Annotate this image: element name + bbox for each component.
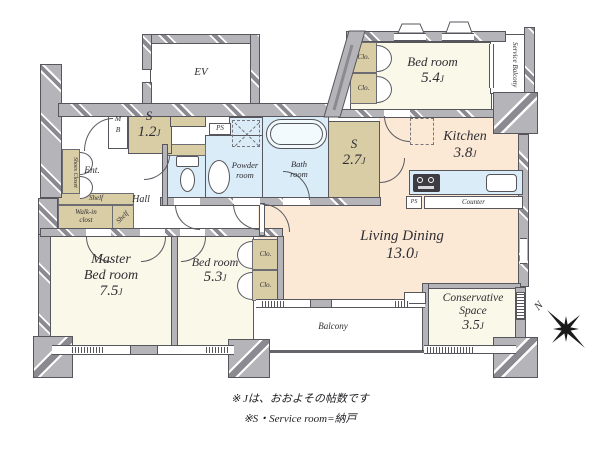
s27-label: S 2.7J: [330, 137, 378, 168]
bedroom54-window-b: [442, 33, 474, 41]
conservative-name-1: Conservative: [430, 292, 516, 305]
toilet-shelf: [167, 144, 206, 156]
conservative-name-2: Space: [430, 305, 516, 318]
wic-line-2: clost: [58, 217, 114, 225]
wall-north-band: [58, 103, 332, 117]
gap-master-wic: [86, 229, 111, 236]
master-name-1: Master: [52, 252, 170, 268]
ps-kitchen-label: PS: [406, 199, 422, 206]
bath-label: Bath room: [276, 160, 322, 179]
kitchen-sink: [486, 174, 517, 192]
master-name-2: Bed room: [52, 268, 170, 284]
master-size: 7.5J: [52, 283, 170, 300]
living-dining-label: Living Dining 13.0J: [322, 228, 482, 263]
note-line-2: ※S・Service room=納戸: [150, 410, 450, 426]
bedroom53-size: 5.3J: [178, 269, 252, 286]
bedroom53-name: Bed room: [178, 256, 252, 269]
gap-bedroom53-door: [180, 229, 205, 236]
conservative-wall-top: [422, 283, 521, 289]
bedroom54-label: Bed room 5.4J: [375, 55, 490, 86]
master-bedroom-label: Master Bed room 7.5J: [52, 252, 170, 300]
bathtub: [266, 119, 327, 149]
washer-x-icon: [233, 121, 261, 148]
conservative-window-stripe: [427, 347, 475, 353]
window-stripe-a: [72, 347, 104, 353]
ev-wall-top: [142, 34, 260, 44]
counter-label: Counter: [424, 199, 523, 207]
ev-label: EV: [150, 66, 252, 78]
shelf-label: Shelf: [58, 195, 134, 203]
entrance-label: Ent.: [75, 166, 109, 177]
living-dining-size: 13.0J: [322, 245, 482, 263]
s27-name: S: [330, 137, 378, 152]
wall-between-bedrooms: [171, 236, 178, 348]
pillar-bottom-left: [33, 336, 73, 378]
floor-plan: EV S 1.2J M B PS Bed room 5.4J Kitchen 3…: [0, 0, 600, 450]
powder-door-arc: [233, 204, 260, 230]
wall-chunk-bottom: [130, 345, 158, 355]
pillar-bottom-mid: [228, 339, 270, 378]
s12-name: S: [126, 109, 172, 124]
ev-wall-left-b: [142, 82, 152, 104]
wall-right-mid: [518, 134, 529, 287]
toilet-bowl: [180, 168, 195, 192]
mb-b: B: [108, 125, 128, 136]
stove: [413, 174, 440, 192]
kitchen-label: Kitchen 3.8J: [415, 129, 515, 161]
mb-m: M: [108, 114, 128, 125]
bedroom53-label: Bed room 5.3J: [178, 256, 252, 286]
s27-size: 2.7J: [330, 152, 378, 169]
compass-north-label: N: [529, 296, 549, 316]
wall-toilet-left: [162, 144, 168, 206]
compass-icon: [547, 310, 585, 348]
stove-grill: [418, 186, 434, 189]
bedroom54-bottom-wall: [338, 109, 506, 118]
wall-left-upper: [40, 64, 62, 198]
s12-size: 1.2J: [126, 124, 172, 141]
note-line-1: ※ Jは、おおよその帖数です: [150, 390, 450, 406]
pillar-bottom-right: [493, 337, 538, 378]
bath-name-2: room: [276, 170, 322, 180]
living-dining-name: Living Dining: [322, 228, 482, 245]
powder-name-2: room: [226, 171, 264, 181]
gap-master-door: [140, 229, 165, 236]
conservative-window-right: [516, 292, 525, 320]
stove-burner-2: [428, 177, 434, 183]
bedroom54-name: Bed room: [375, 55, 490, 70]
powder-label: Powder room: [226, 161, 264, 180]
closet53-a-label: Clo.: [252, 251, 279, 259]
kitchen-name: Kitchen: [415, 129, 515, 145]
balcony-rail-bottom: [268, 350, 428, 353]
wall-right-of-closet53: [277, 236, 284, 306]
bathtub-inner: [270, 123, 323, 145]
balcony-label: Balcony: [300, 321, 366, 331]
stove-burner-1: [417, 177, 423, 183]
washer-space: [232, 120, 260, 147]
window-right-slit: [520, 238, 527, 264]
bedroom54-size: 5.4J: [375, 70, 490, 87]
wall-right-top: [524, 27, 535, 100]
ld-window-stripe-a: [262, 301, 284, 307]
conservative-size: 3.5J: [430, 318, 516, 334]
toilet-tank: [176, 156, 199, 167]
ld-window-stripe-b: [395, 301, 409, 307]
ev-wall-left-a: [142, 34, 152, 70]
closet54-a-label: Clo.: [350, 54, 377, 62]
shoes-closet-label: Shoes Closet: [64, 151, 78, 194]
ld-band-chunk: [310, 299, 332, 308]
closet53-b-label: Clo.: [252, 282, 279, 290]
pillar-service-balcony: [493, 92, 538, 134]
walk-in-closet-label: Walk-in clost: [58, 209, 114, 225]
gap-toilet-door: [174, 198, 200, 205]
wall-left-lower: [38, 234, 51, 348]
service-balcony-label: Service Balcony: [498, 37, 518, 93]
toilet-door-arc: [175, 205, 200, 230]
window-stripe-b: [206, 347, 228, 353]
closet54-b-label: Clo.: [350, 85, 377, 93]
conservative-label: Conservative Space 3.5J: [430, 292, 516, 333]
kitchen-size: 3.8J: [415, 145, 515, 162]
bedroom54-window-a: [394, 33, 426, 41]
ps-powder-label: PS: [209, 125, 231, 133]
bedroom54-top-wall: [346, 31, 506, 42]
mb-label: M B: [108, 114, 128, 135]
s12-label: S 1.2J: [126, 109, 172, 140]
